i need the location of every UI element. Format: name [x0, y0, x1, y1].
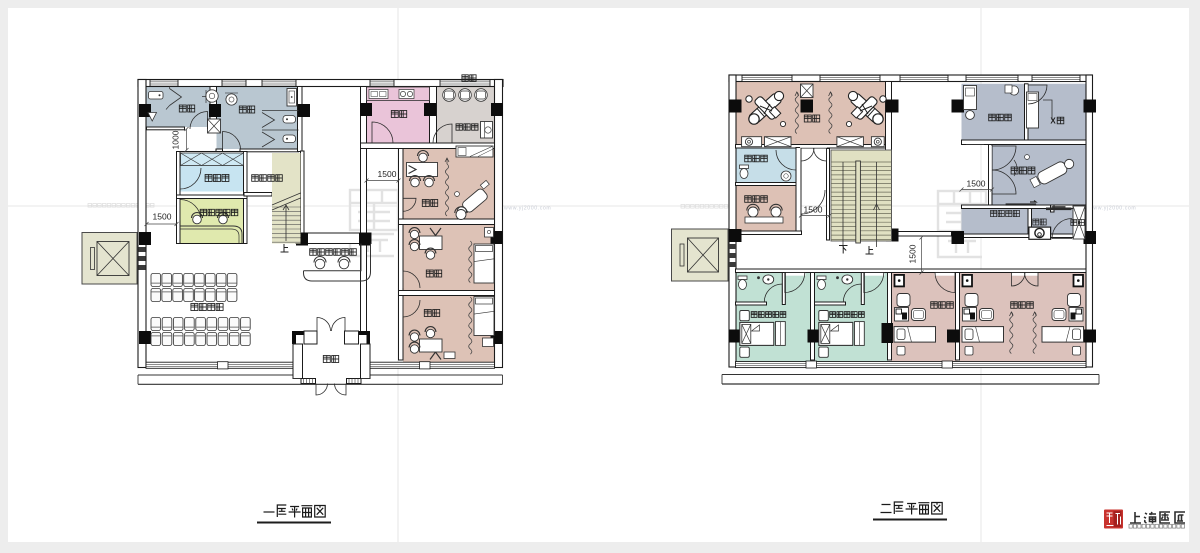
svg-text:1500: 1500	[908, 244, 918, 263]
svg-text:X: X	[1050, 117, 1056, 126]
svg-text:1500: 1500	[153, 212, 172, 222]
svg-text:1000: 1000	[171, 130, 181, 149]
svg-text:www.yj2000.com: www.yj2000.com	[1089, 206, 1136, 212]
svg-text:1500: 1500	[967, 179, 986, 189]
svg-text:www.yj2000.com: www.yj2000.com	[504, 206, 551, 212]
svg-text:1500: 1500	[804, 205, 823, 215]
svg-text:1500: 1500	[378, 169, 397, 179]
